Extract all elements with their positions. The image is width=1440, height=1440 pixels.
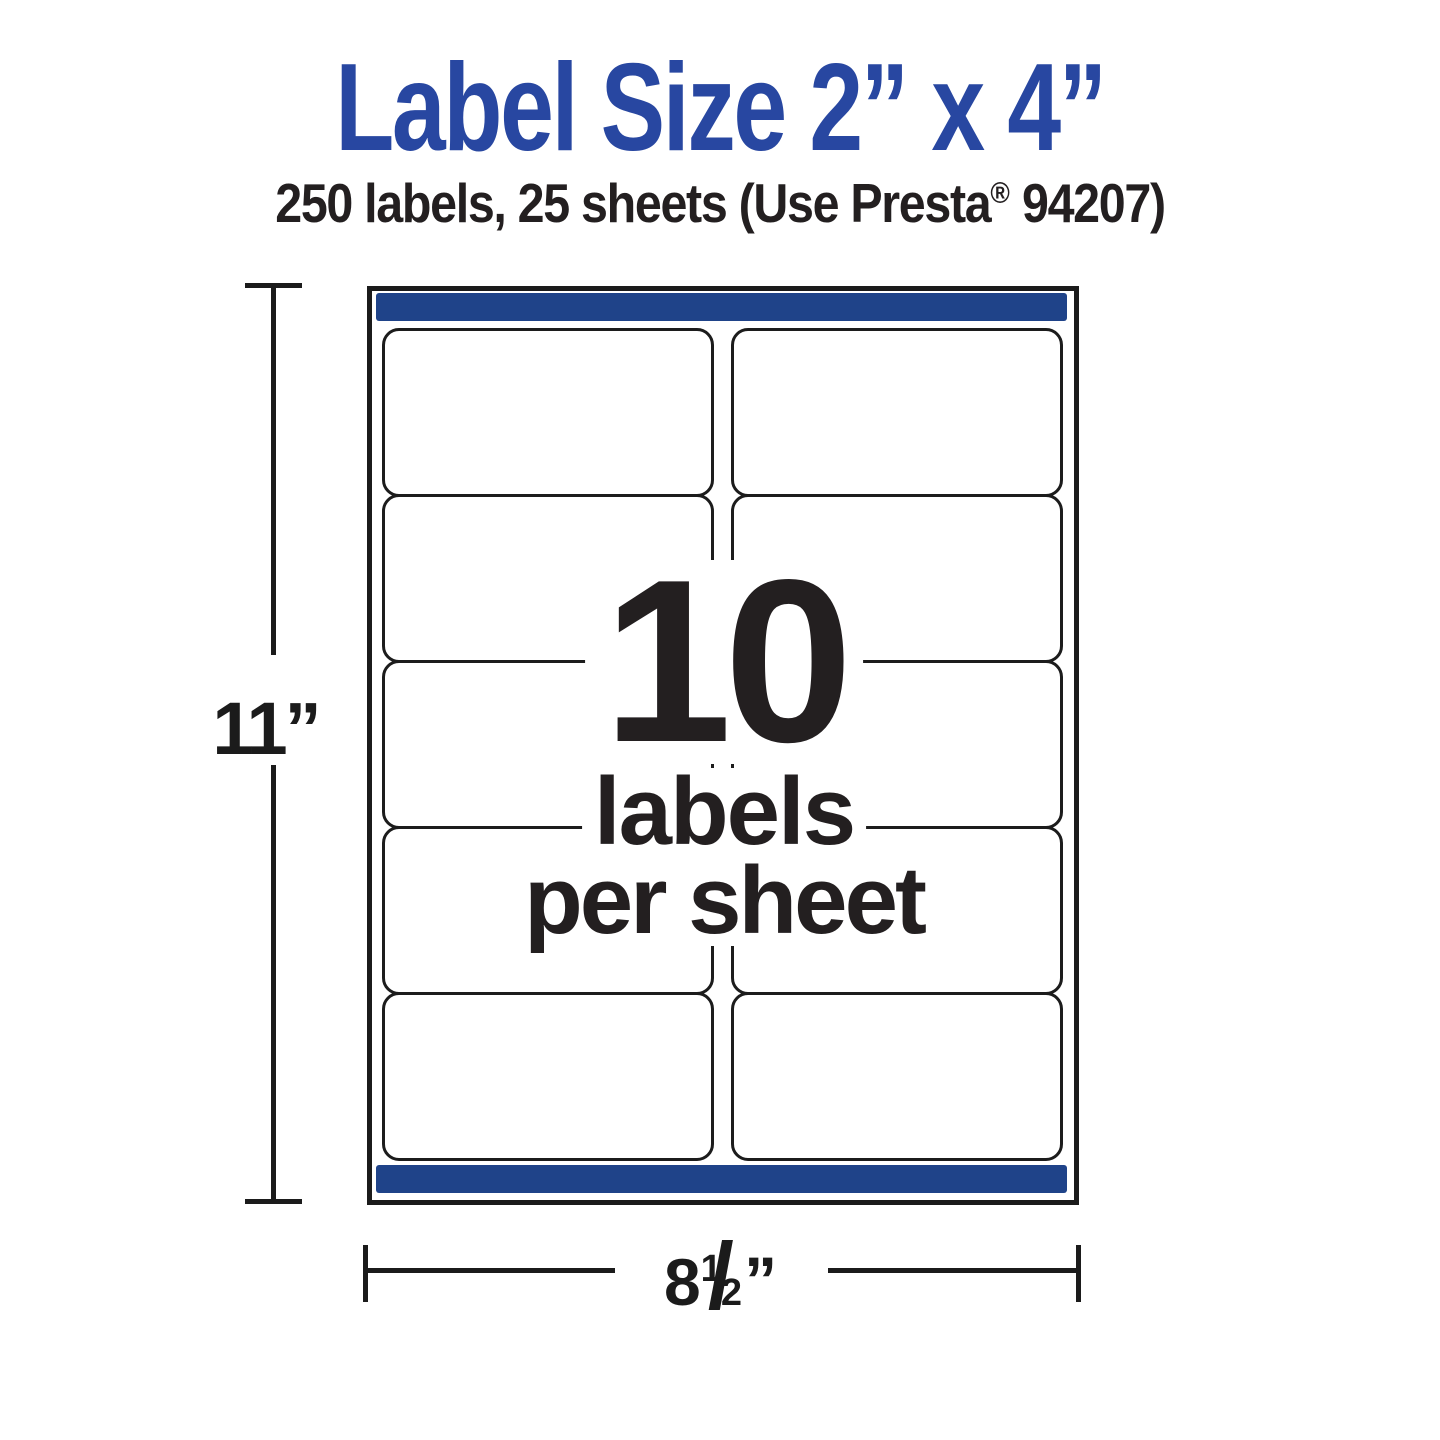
labels-count: 10 xyxy=(585,560,863,764)
label-cell xyxy=(382,328,714,497)
label-sheet-diagram-canvas: Label Size 2” x 4” 250 labels, 25 sheets… xyxy=(0,0,1440,1440)
height-dimension-line-lower xyxy=(271,765,276,1204)
width-dimension-line-left xyxy=(363,1268,615,1273)
label-size-title: Label Size 2” x 4” xyxy=(158,46,1281,170)
height-dimension-label: 11” xyxy=(188,692,343,766)
fraction-denominator: 2 xyxy=(721,1272,742,1314)
height-inch-mark: ” xyxy=(285,687,319,770)
per-sheet-word: per sheet xyxy=(512,856,936,946)
width-dimension-left-tick xyxy=(363,1245,368,1302)
height-dimension-line-upper xyxy=(271,283,276,655)
height-dimension-bottom-tick xyxy=(245,1199,302,1204)
pack-details-subtitle: 250 labels, 25 sheets (Use Presta® 94207… xyxy=(86,166,1353,231)
subtitle-text-after: 94207) xyxy=(1010,172,1165,234)
height-value: 11 xyxy=(212,687,284,770)
label-cell xyxy=(731,992,1063,1161)
width-dimension-line-right xyxy=(828,1268,1079,1273)
registered-trademark-mark: ® xyxy=(990,177,1009,210)
labels-per-sheet-annotation: 10 labels per sheet xyxy=(512,560,936,946)
subtitle-text-before: 250 labels, 25 sheets (Use Presta xyxy=(275,172,990,234)
sheet-top-margin-bar xyxy=(376,293,1067,321)
width-dimension-right-tick xyxy=(1076,1245,1081,1302)
sheet-bottom-margin-bar xyxy=(376,1165,1067,1193)
width-inch-mark: ” xyxy=(744,1243,777,1317)
width-whole-number: 8 xyxy=(664,1245,701,1319)
label-cell xyxy=(731,328,1063,497)
label-cell xyxy=(382,992,714,1161)
labels-word: labels xyxy=(582,768,866,856)
width-dimension-label: 81/2” xyxy=(613,1238,828,1324)
